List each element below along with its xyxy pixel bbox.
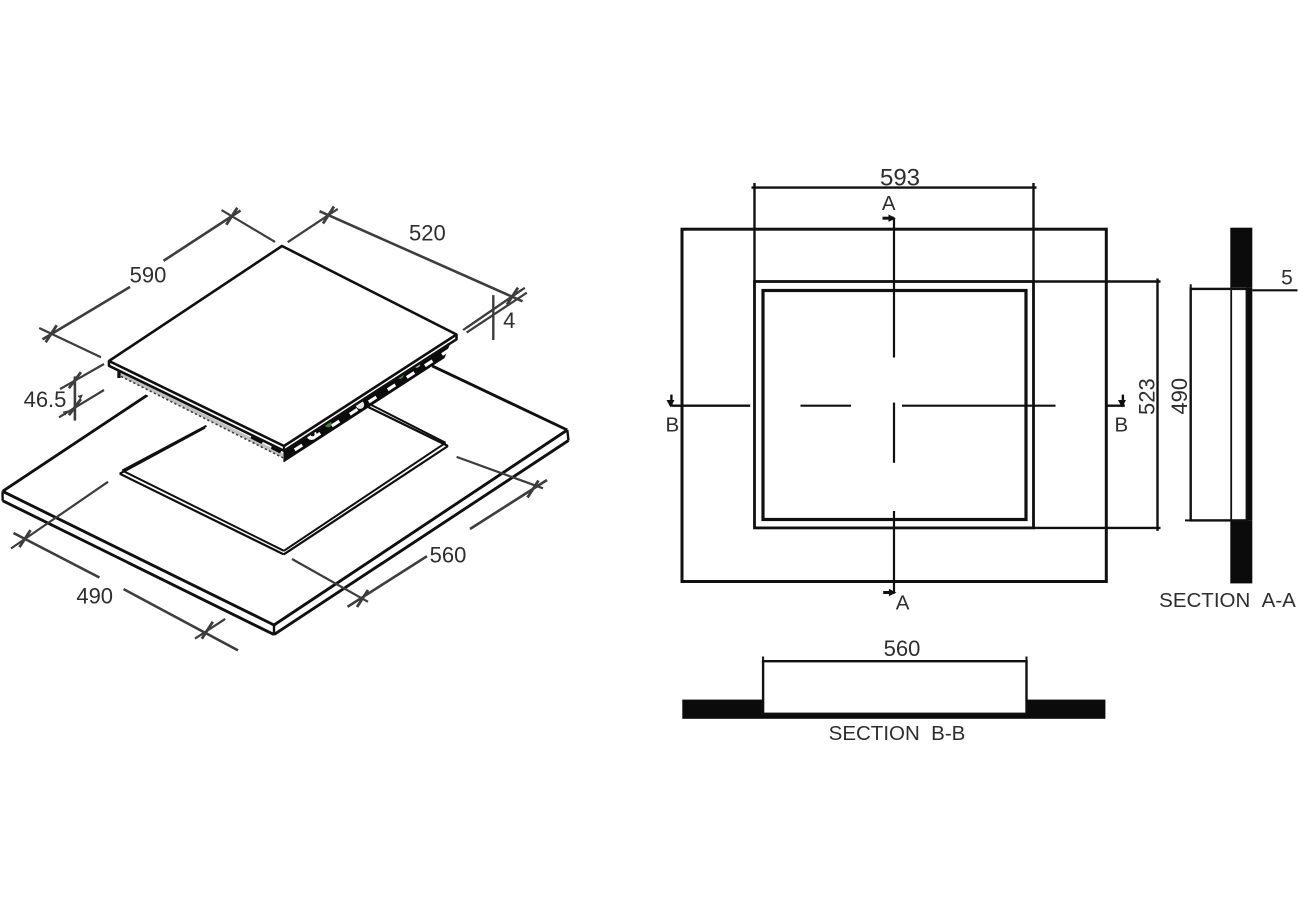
svg-text:A: A [882,192,896,215]
svg-text:A: A [896,592,910,615]
svg-text:560: 560 [430,543,467,568]
svg-text:SECTION A-A: SECTION A-A [1159,589,1296,612]
svg-text:560: 560 [884,636,921,661]
svg-text:590: 590 [130,263,167,288]
svg-text:B: B [1115,414,1129,437]
svg-text:490: 490 [76,583,113,608]
svg-text:46.5: 46.5 [24,387,67,412]
svg-text:523: 523 [1134,378,1159,415]
svg-text:4: 4 [503,308,515,333]
svg-text:593: 593 [880,165,920,192]
svg-text:490: 490 [1167,378,1192,415]
svg-text:SECTION B-B: SECTION B-B [829,722,966,745]
svg-text:520: 520 [409,221,446,246]
svg-text:B: B [665,414,679,437]
svg-text:5: 5 [1281,267,1293,290]
